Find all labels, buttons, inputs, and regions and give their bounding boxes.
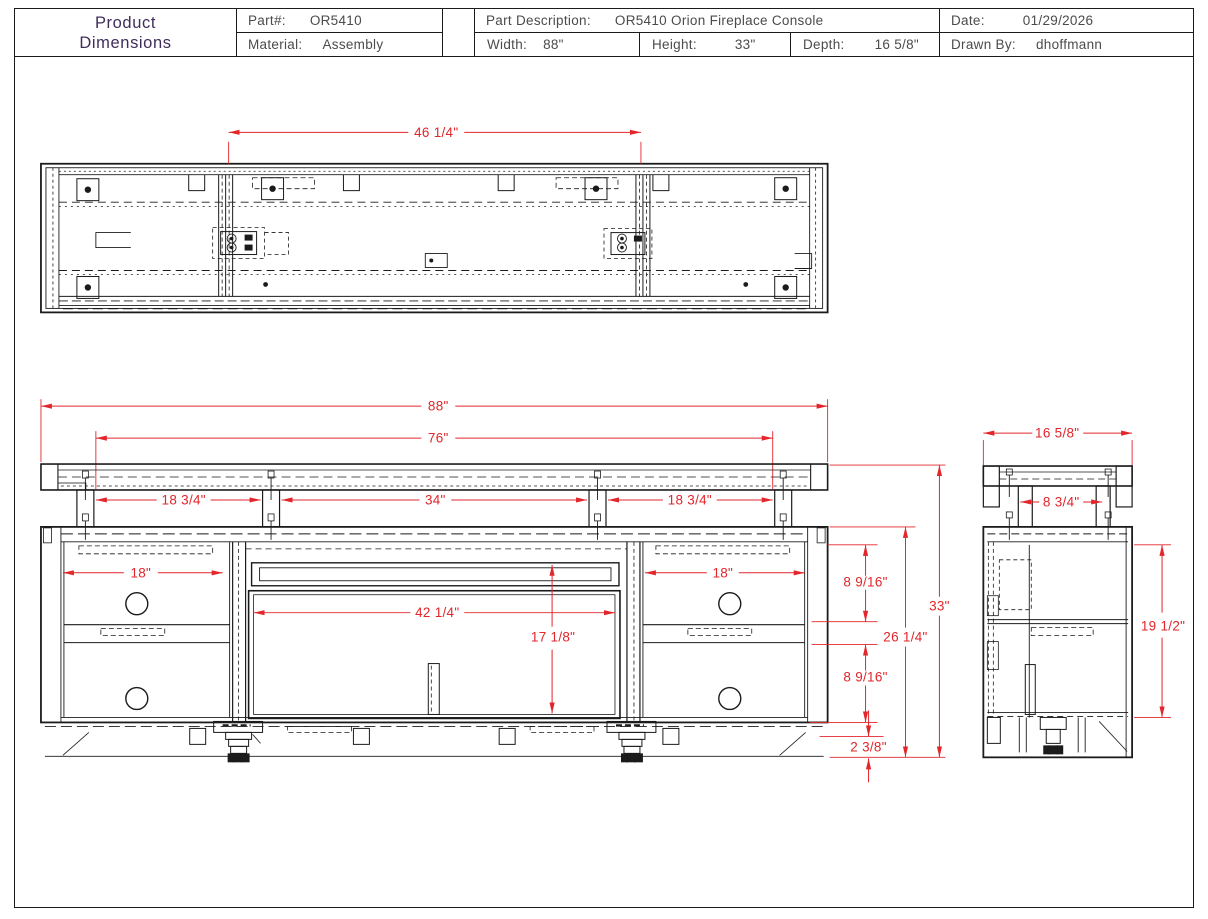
whd-row: Width: 88" Height: 33" Depth: 16 5/8" bbox=[475, 33, 939, 56]
drawnby-value: dhoffmann bbox=[1036, 37, 1102, 52]
side-cabinet bbox=[983, 527, 1132, 757]
sheet-title-line1: Product bbox=[95, 13, 156, 33]
drawnby-row: Drawn By: dhoffmann bbox=[940, 33, 1193, 56]
dim-top-board-width: 76" bbox=[96, 431, 773, 489]
title-cell: Product Dimensions bbox=[15, 9, 237, 56]
right-drawer-bank: 18" bbox=[643, 542, 805, 718]
part-value: OR5410 bbox=[310, 13, 362, 28]
drawing-canvas: 46 1/4" 88" 76" bbox=[15, 57, 1191, 904]
drawer-knob bbox=[126, 688, 148, 710]
material-label: Material: bbox=[248, 37, 302, 52]
date-drawnby-cell: Date: 01/29/2026 Drawn By: dhoffmann bbox=[940, 9, 1193, 56]
width-cell: Width: 88" bbox=[475, 33, 640, 56]
description-value: OR5410 Orion Fireplace Console bbox=[615, 13, 824, 28]
depth-label: Depth: bbox=[803, 37, 845, 52]
title-block: Product Dimensions Part#: OR5410 Materia… bbox=[15, 9, 1193, 57]
dim-label-26-1-4: 26 1/4" bbox=[883, 630, 927, 645]
description-label: Part Description: bbox=[486, 13, 591, 28]
mounting-blocks bbox=[77, 178, 797, 299]
dim-label-18-3-4-right: 18 3/4" bbox=[668, 492, 712, 507]
right-leveler-hardware bbox=[604, 229, 652, 259]
material-row: Material: Assembly bbox=[237, 33, 442, 56]
dim-riser-spans: 18 3/4" 34" 18 3/4" bbox=[96, 492, 773, 507]
top-view: 46 1/4" bbox=[41, 125, 828, 313]
left-tab bbox=[96, 233, 131, 248]
date-value: 01/29/2026 bbox=[1023, 13, 1094, 28]
dim-label-19-1-2: 19 1/2" bbox=[1141, 619, 1185, 634]
right-tab bbox=[795, 254, 812, 269]
height-value: 33" bbox=[735, 37, 756, 52]
part-row: Part#: OR5410 bbox=[237, 9, 442, 33]
center-clip bbox=[425, 254, 447, 268]
part-label: Part#: bbox=[248, 13, 286, 28]
dim-label-33: 33" bbox=[929, 599, 950, 614]
dim-label-8-9-16-upper: 8 9/16" bbox=[843, 575, 887, 590]
front-vertical-dims: 8 9/16" 8 9/16" 2 3/8" 26 1/4" 33" bbox=[810, 465, 950, 782]
sheet-title-line2: Dimensions bbox=[79, 33, 171, 53]
width-value: 88" bbox=[543, 37, 564, 52]
depth-value: 16 5/8" bbox=[875, 37, 919, 52]
cabinet-body bbox=[41, 527, 828, 756]
dim-label-88: 88" bbox=[428, 399, 449, 414]
part-material-cell: Part#: OR5410 Material: Assembly bbox=[237, 9, 443, 56]
floating-top-board bbox=[41, 464, 828, 490]
dim-label-2-3-8: 2 3/8" bbox=[850, 739, 887, 754]
left-drawer-bank: 18" bbox=[63, 542, 230, 718]
dim-label-46-1-4: 46 1/4" bbox=[414, 125, 458, 140]
side-risers: 8 3/4" bbox=[1006, 469, 1111, 540]
dim-label-34: 34" bbox=[425, 492, 446, 507]
height-label: Height: bbox=[652, 37, 697, 52]
left-leveler-hardware bbox=[213, 228, 289, 259]
dim-label-18-3-4-left: 18 3/4" bbox=[162, 492, 206, 507]
dim-label-8-3-4: 8 3/4" bbox=[1043, 494, 1080, 509]
date-label: Date: bbox=[951, 13, 985, 28]
front-view: 88" 76" bbox=[41, 399, 950, 783]
drawer-knob bbox=[719, 593, 741, 615]
dim-top-opening-width: 46 1/4" bbox=[229, 125, 641, 164]
dim-label-8-9-16-lower: 8 9/16" bbox=[843, 670, 887, 685]
dim-label-76: 76" bbox=[428, 431, 449, 446]
width-label: Width: bbox=[487, 37, 527, 52]
drawnby-label: Drawn By: bbox=[951, 37, 1016, 52]
depth-cell: Depth: 16 5/8" bbox=[791, 33, 939, 56]
dim-label-17-1-8: 17 1/8" bbox=[531, 630, 575, 645]
dim-overall-depth: 16 5/8" bbox=[983, 426, 1132, 466]
dim-side-interior-height: 19 1/2" bbox=[1134, 545, 1185, 718]
description-row: Part Description: OR5410 Orion Fireplace… bbox=[475, 9, 939, 33]
dim-label-18-right: 18" bbox=[712, 565, 733, 580]
side-view: 16 5/8" 8 3/4" bbox=[983, 426, 1185, 758]
dim-label-42-1-4: 42 1/4" bbox=[415, 605, 459, 620]
fireplace-section: 42 1/4" 17 1/8" bbox=[233, 542, 640, 723]
height-cell: Height: 33" bbox=[640, 33, 791, 56]
dim-label-16-5-8: 16 5/8" bbox=[1035, 426, 1079, 441]
center-clip-screw bbox=[429, 259, 433, 263]
drawing-sheet: Product Dimensions Part#: OR5410 Materia… bbox=[14, 8, 1194, 908]
drawer-knob bbox=[126, 593, 148, 615]
drawer-knob bbox=[719, 688, 741, 710]
date-row: Date: 01/29/2026 bbox=[940, 9, 1193, 33]
material-value: Assembly bbox=[322, 37, 383, 52]
dim-label-18-left: 18" bbox=[130, 565, 151, 580]
spacer-cell bbox=[443, 9, 475, 56]
description-cell: Part Description: OR5410 Orion Fireplace… bbox=[475, 9, 940, 56]
